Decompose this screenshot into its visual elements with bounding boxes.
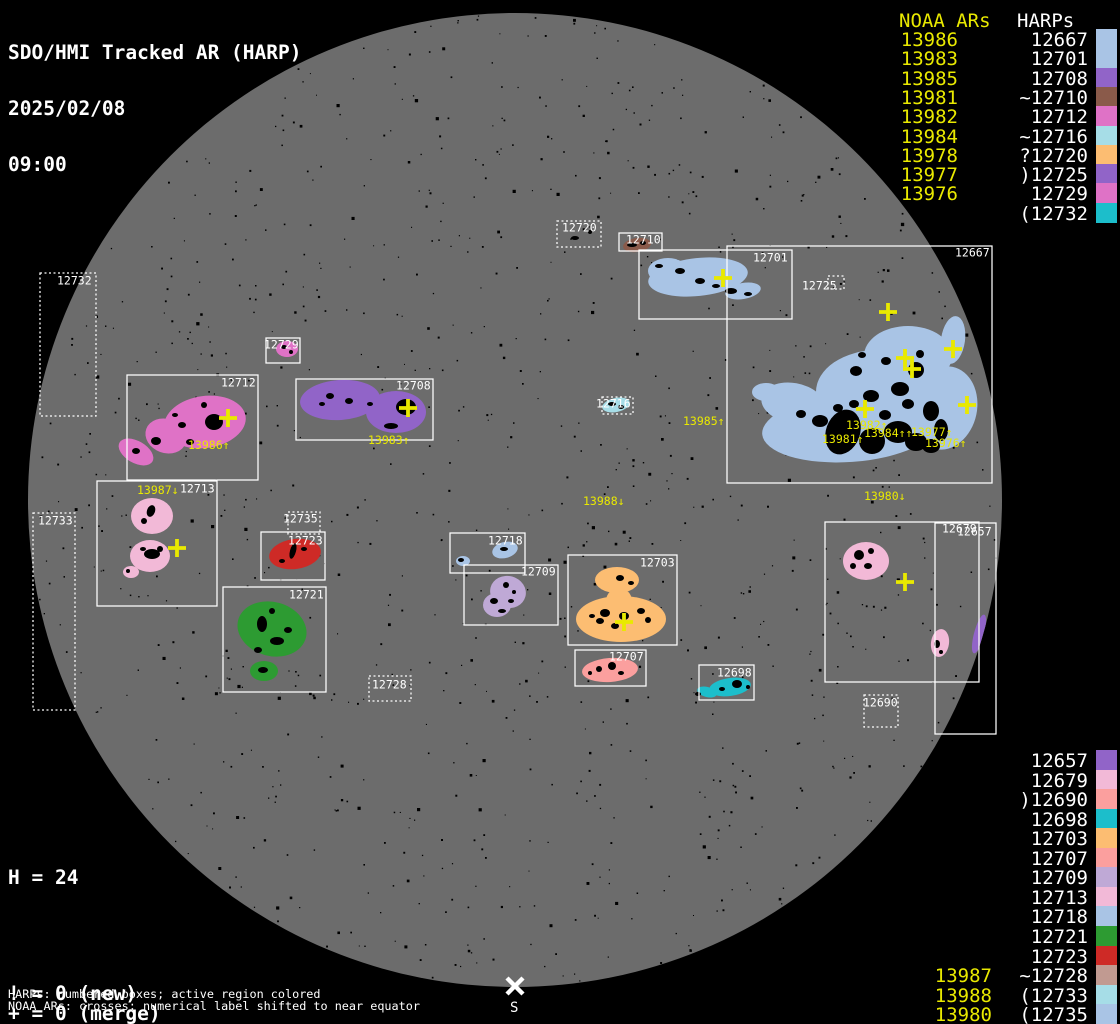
legend-bottom-swatch-12709 [1096,867,1117,888]
harp-box-label-12703: 12703 [640,556,675,570]
legend-top-harp-12708: 12708 [955,69,1088,89]
legend-bottom-harp-12713: 12713 [955,888,1088,908]
noaa-map-label-13976: 13976↑ [925,436,967,450]
noaa-ars-header: NOAA ARs [899,11,991,31]
legend-top-swatch-12710 [1096,87,1117,107]
legend-top-harp-12725: )12725 [955,165,1088,185]
harp-box-label-12690: 12690 [863,696,898,710]
legend-top-noaa-13984: 13984 [899,127,958,147]
legend-bottom-harp-12728: ~12728 [955,966,1088,986]
noaa-map-label-13981: 13981↑ [822,432,864,446]
harp-box-label-12728: 12728 [372,678,407,692]
legend-bottom-swatch-12698 [1096,809,1117,830]
harp-count: H = 24 [8,868,231,887]
legend-top-harp-12701: 12701 [955,49,1088,69]
legend-bottom-harp-12679: 12679 [955,771,1088,791]
harp-box-label-12718: 12718 [488,534,523,548]
footnote-1: NOAA ARs: crosses; numerical label shift… [8,1001,420,1013]
noaa-map-label-13988: 13988↓ [583,494,625,508]
harp-box-label-12701: 12701 [753,251,788,265]
harp-box-label-12712: 12712 [221,376,256,390]
harp-box-label-12713: 12713 [180,482,215,496]
legend-bottom-harp-12698: 12698 [955,810,1088,830]
legend-top-noaa-13985: 13985 [899,69,958,89]
harp-box-label-12710: 12710 [626,233,661,247]
legend-top-swatch-12712 [1096,106,1117,126]
legend-top-swatch-12716 [1096,126,1117,146]
legend-bottom-harp-12690: )12690 [955,790,1088,810]
legend-top-noaa-13983: 13983 [899,49,958,69]
harp-box-label-12708: 12708 [396,379,431,393]
legend-top-harp-12720: ?12720 [955,146,1088,166]
noaa-map-label-13987: 13987↓ [137,483,179,497]
legend-top-harp-12729: 12729 [955,184,1088,204]
legend-bottom-swatch-12657 [1096,750,1117,771]
legend-bottom-swatch-12718 [1096,906,1117,927]
legend-top-swatch-12701 [1096,48,1117,68]
harp-box-label-12735: 12735 [283,512,318,526]
legend-bottom-harp-12709: 12709 [955,868,1088,888]
harp-box-label-12679: 12679 [942,522,977,536]
legend-bottom-swatch-12679 [1096,770,1117,791]
legend-top-noaa-13981: 13981 [899,88,958,108]
harp-box-label-12725: 12725 [802,279,837,293]
harp-plot: 1265712667126791269012698127011270312707… [0,0,1120,1024]
footnotes: HARPs: numbered boxes; active region col… [8,989,420,1012]
noaa-map-label-13986: 13986↑ [188,438,230,452]
noaa-map-label-13980: 13980↓ [864,489,906,503]
harp-box-label-12729: 12729 [264,338,299,352]
harp-box-label-12720: 12720 [562,221,597,235]
south-pole-label: S [510,1000,518,1016]
legend-top-swatch-12667 [1096,29,1117,49]
legend-top-noaa-13977: 13977 [899,165,958,185]
legend-bottom-swatch-12703 [1096,828,1117,849]
legend-bottom-harp-12735: (12735 [955,1005,1088,1024]
legend-bottom-swatch-12723 [1096,946,1117,967]
legend-top-noaa-13976: 13976 [899,184,958,204]
plot-date: 2025/02/08 [8,100,302,119]
noaa-map-label-13984: 13984↑↑ [864,426,912,440]
legend-top-noaa-13982: 13982 [899,107,958,127]
harp-box-label-12732: 12732 [57,274,92,288]
legend-top-swatch-12729 [1096,183,1117,203]
legend-bottom-harp-12657: 12657 [955,751,1088,771]
legend-bottom-swatch-12721 [1096,926,1117,947]
legend-top-harp-12710: ~12710 [955,88,1088,108]
legend-bottom-harp-12733: (12733 [955,986,1088,1006]
harp-box-label-12709: 12709 [521,565,556,579]
harp-box-label-12716: 12716 [596,397,631,411]
plot-title: SDO/HMI Tracked AR (HARP) [8,44,302,63]
legend-bottom-swatch-12707 [1096,848,1117,869]
noaa-map-label-13985: 13985↑ [683,414,725,428]
legend-top-harp-12667: 12667 [955,30,1088,50]
legend-top-swatch-12725 [1096,164,1117,184]
legend-top-harp-12732: (12732 [955,204,1088,224]
legend-top-noaa-13986: 13986 [899,30,958,50]
legend-bottom-swatch-12713 [1096,887,1117,908]
legend-bottom-swatch-12735 [1096,1004,1117,1024]
plot-time: 09:00 [8,156,302,175]
legend-top-swatch-12720 [1096,145,1117,165]
legend-bottom-swatch-12728 [1096,965,1117,986]
legend-bottom-swatch-12690 [1096,789,1117,810]
stats-gap [8,926,231,945]
legend-top-swatch-12708 [1096,68,1117,88]
harps-header: HARPs [1017,11,1074,31]
legend-top-noaa-13978: 13978 [899,146,958,166]
legend-bottom-harp-12721: 12721 [955,927,1088,947]
legend-bottom-harp-12718: 12718 [955,907,1088,927]
legend-bottom-harp-12703: 12703 [955,829,1088,849]
harp-box-label-12733: 12733 [38,514,73,528]
harp-box-label-12723: 12723 [288,534,323,548]
legend-bottom-harp-12723: 12723 [955,947,1088,967]
harp-box-label-12667: 12667 [955,246,990,260]
legend-top-harp-12716: ~12716 [955,127,1088,147]
legend-bottom-swatch-12733 [1096,985,1117,1006]
title-block: SDO/HMI Tracked AR (HARP) 2025/02/08 09:… [8,6,302,213]
noaa-map-label-13983: 13983↑ [368,433,410,447]
harp-box-label-12698: 12698 [717,666,752,680]
harp-box-label-12721: 12721 [289,588,324,602]
harp-box-label-12707: 12707 [609,650,644,664]
legend-top-swatch-12732 [1096,203,1117,223]
legend-top-harp-12712: 12712 [955,107,1088,127]
legend-bottom-harp-12707: 12707 [955,849,1088,869]
